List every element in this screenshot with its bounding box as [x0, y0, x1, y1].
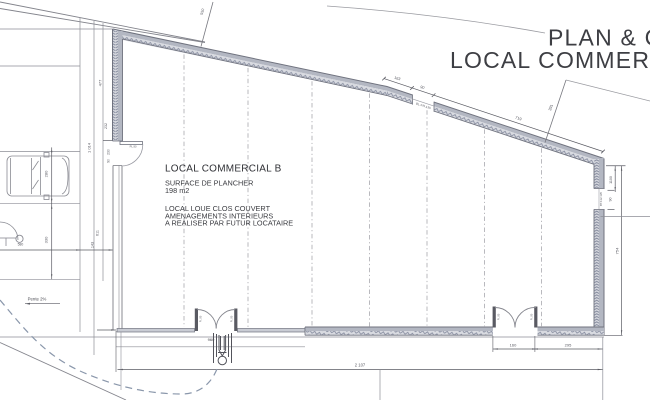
- svg-text:LOCAL COMMERCIAL B: LOCAL COMMERCIAL B: [165, 164, 282, 175]
- svg-text:Pente 2%: Pente 2%: [28, 297, 47, 302]
- svg-text:BT.112.135: BT.112.135: [599, 192, 603, 206]
- svg-text:LOCAL COMMERCIAL B: LOCAL COMMERCIAL B: [450, 47, 650, 73]
- svg-text:90: 90: [609, 198, 613, 202]
- svg-text:1 014: 1 014: [87, 142, 92, 153]
- svg-text:477: 477: [98, 79, 103, 86]
- svg-text:90: 90: [107, 159, 111, 163]
- svg-text:PL.90: PL.90: [230, 315, 233, 322]
- svg-text:90: 90: [420, 85, 425, 90]
- svg-text:PL.90: PL.90: [530, 313, 533, 320]
- svg-text:391: 391: [547, 104, 554, 112]
- svg-text:2 107: 2 107: [355, 362, 366, 367]
- svg-text:198 m2: 198 m2: [165, 186, 189, 195]
- svg-text:PL.90: PL.90: [130, 145, 137, 149]
- svg-text:230: 230: [107, 149, 111, 155]
- svg-text:160: 160: [510, 342, 517, 347]
- svg-text:143: 143: [91, 242, 95, 248]
- svg-text:232: 232: [104, 123, 108, 129]
- svg-text:1100: 1100: [609, 176, 613, 184]
- svg-text:611: 611: [96, 230, 100, 236]
- svg-text:754: 754: [615, 247, 620, 254]
- svg-text:719: 719: [515, 115, 524, 122]
- svg-text:PL.90: PL.90: [200, 315, 203, 322]
- svg-text:295: 295: [565, 342, 572, 347]
- svg-text:163: 163: [394, 76, 401, 82]
- svg-text:550: 550: [200, 8, 206, 15]
- svg-text:960: 960: [208, 337, 215, 342]
- svg-text:330: 330: [44, 236, 49, 243]
- svg-text:580: 580: [18, 243, 24, 247]
- svg-text:280: 280: [44, 170, 49, 177]
- svg-text:PL.90: PL.90: [498, 313, 501, 320]
- svg-text:A REALISER PAR FUTUR LOCATAIRE: A REALISER PAR FUTUR LOCATAIRE: [165, 219, 293, 228]
